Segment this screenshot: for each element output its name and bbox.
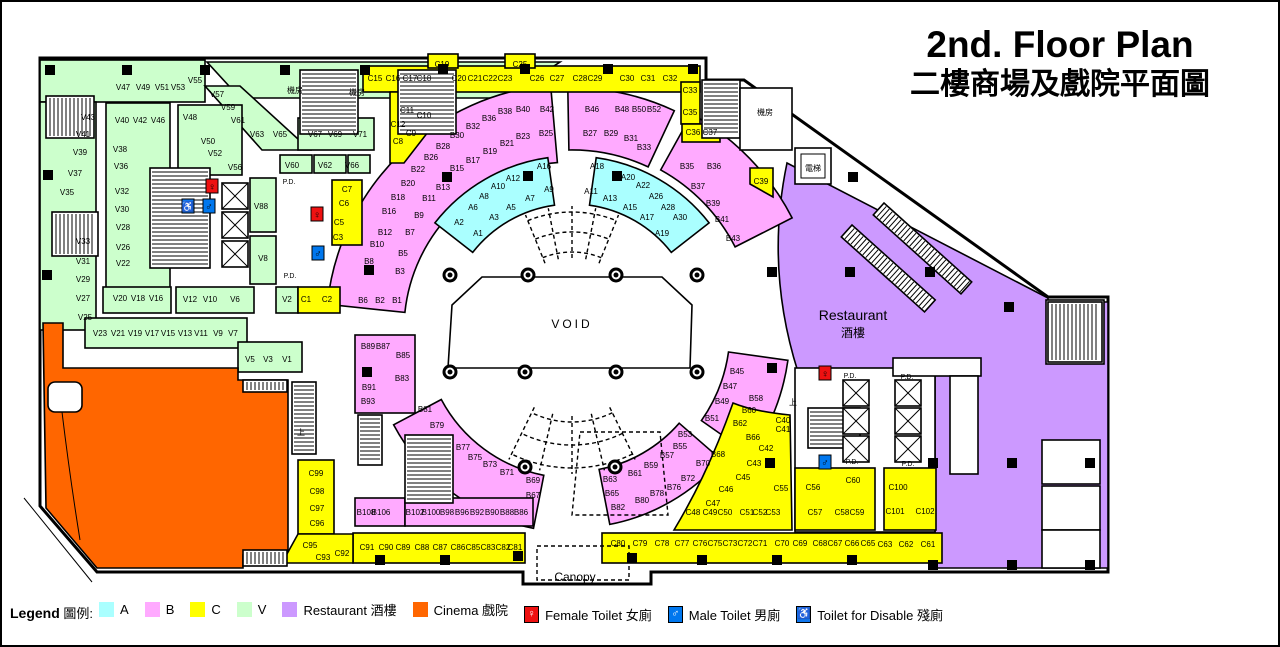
unit-label-v: V88: [254, 202, 269, 211]
unit-label-v: V49: [136, 83, 151, 92]
legend-label: Restaurant 酒樓: [303, 600, 396, 619]
unit-label-c: C20: [452, 74, 467, 83]
lift: [843, 408, 869, 434]
unit-label-v: V17: [145, 329, 160, 338]
unit-label-a: A13: [603, 194, 618, 203]
pd-label: P.D.: [284, 273, 297, 280]
unit-label-c: C68: [813, 539, 828, 548]
unit-label-v: V42: [133, 116, 148, 125]
unit-label-a: A18: [590, 162, 605, 171]
column-square: [848, 172, 858, 182]
unit-label-v: V65: [273, 130, 288, 139]
unit-label-b: B42: [540, 105, 555, 114]
unit-label-c: C17: [403, 74, 418, 83]
column-round-core: [523, 465, 528, 470]
unit-label-b: B55: [673, 442, 688, 451]
unit-label-v: V22: [116, 259, 131, 268]
legend-items: ABCVRestaurant 酒樓Cinema 戲院♀Female Toilet…: [99, 600, 959, 624]
unit-label-b: B36: [707, 162, 722, 171]
unit-label-c: C99: [309, 469, 324, 478]
column-round-core: [614, 370, 619, 375]
column-round-core: [448, 273, 453, 278]
unit-label-v: V26: [116, 243, 131, 252]
column-square: [122, 65, 132, 75]
column-round-core: [613, 465, 618, 470]
column-square: [928, 458, 938, 468]
unit-label-b: B62: [733, 419, 748, 428]
column-square: [523, 171, 533, 181]
unit-label-c: C76: [693, 539, 708, 548]
unit-label-v: V52: [208, 149, 223, 158]
column-square: [772, 555, 782, 565]
unit-label-b: B18: [391, 193, 406, 202]
unit-label-v: V20: [113, 294, 128, 303]
unit-label-a: A19: [655, 229, 670, 238]
unit-label-b: B108: [357, 508, 376, 517]
unit-label-c: C2: [322, 295, 333, 304]
legend-item: ♀Female Toilet 女廁: [524, 605, 652, 624]
unit-label-a: A5: [506, 203, 516, 212]
unit-label-v: V7: [228, 329, 238, 338]
unit-label-c: C72: [738, 539, 753, 548]
unit-label-v: V21: [111, 329, 126, 338]
unit-label-b: B36: [482, 114, 497, 123]
unit-label-b: B17: [466, 156, 481, 165]
unit-label-c: C79: [633, 539, 648, 548]
unit-label-c: C47: [706, 499, 721, 508]
lift: [895, 436, 921, 462]
unit-label-b: B40: [516, 105, 531, 114]
legend-item: Restaurant 酒樓: [282, 600, 396, 619]
unit-label-b: B57: [660, 451, 675, 460]
unit-label-c: C12: [391, 120, 406, 129]
column-square: [200, 65, 210, 75]
unit-label-v: V28: [116, 223, 131, 232]
unit-label-v: V67: [308, 130, 323, 139]
unit-label-c: C8: [393, 137, 404, 146]
unit-label-b: B46: [585, 105, 600, 114]
restaurant-label-zh: 酒樓: [841, 325, 865, 340]
unit-label-c: C61: [921, 540, 936, 549]
column-square: [928, 560, 938, 570]
unit-label-c: C77: [675, 539, 690, 548]
unit-label-c: C75: [708, 539, 723, 548]
unit-label-v: V37: [68, 169, 83, 178]
unit-label-c: C50: [718, 508, 733, 517]
restaurant-label-en: Restaurant: [819, 307, 888, 323]
unit-label-c: C48: [686, 508, 701, 517]
legend-swatch: [99, 602, 114, 617]
unit-label-b: B15: [450, 164, 465, 173]
unit-label-v: V16: [149, 294, 164, 303]
unit-label-b: B59: [644, 461, 659, 470]
unit-label-v: V31: [76, 257, 91, 266]
column-square: [1007, 458, 1017, 468]
staircase: [243, 380, 287, 392]
unit-label-b: B100: [422, 508, 441, 517]
unit-label-c: C90: [379, 543, 394, 552]
unit-label-c: C26: [530, 74, 545, 83]
unit-label-c: C45: [736, 473, 751, 482]
unit-label-b: B37: [691, 182, 706, 191]
unit-label-c: C7: [342, 185, 353, 194]
unit-label-b: B93: [361, 397, 376, 406]
staircase: [300, 70, 358, 134]
unit-label-b: B58: [749, 394, 764, 403]
unit-label-c: C78: [655, 539, 670, 548]
legend-item: ♂Male Toilet 男廁: [668, 605, 781, 624]
unit-label-c: C100: [888, 483, 908, 492]
unit-label-b: B91: [362, 383, 377, 392]
unit-label-c: C42: [759, 444, 774, 453]
unit-label-b: B85: [396, 351, 411, 360]
column-square: [375, 555, 385, 565]
pd-label: P.D.: [902, 461, 915, 468]
unit-label-c: C6: [339, 199, 350, 208]
unit-label-b: B31: [624, 134, 639, 143]
unit-label-v: V27: [76, 294, 91, 303]
unit-label-c: C102: [915, 507, 935, 516]
legend-item: A: [99, 602, 129, 617]
unit-label-c: C92: [335, 549, 350, 558]
unit-label-b: B48: [615, 105, 630, 114]
unit-label-b: B29: [604, 129, 619, 138]
unit-label-v: V38: [113, 145, 128, 154]
unit-label-c: C30: [620, 74, 635, 83]
column-round-core: [523, 370, 528, 375]
unit-label-c: C71: [753, 539, 768, 548]
staircase: [52, 212, 98, 256]
svg-text:♀: ♀: [208, 182, 216, 193]
unit-label-v: V59: [221, 103, 236, 112]
unit-label-c: C95: [303, 541, 318, 550]
unit-label-v: V18: [131, 294, 146, 303]
unit-label-c: C97: [310, 504, 325, 513]
lift: [895, 408, 921, 434]
unit-label-v: V36: [114, 162, 129, 171]
unit-label-c: C10: [417, 111, 432, 120]
legend-label: Female Toilet 女廁: [545, 605, 652, 624]
column-square: [697, 555, 707, 565]
unit-label-v: V56: [228, 163, 243, 172]
unit-label-c: C58: [835, 508, 850, 517]
unit-label-b: B23: [516, 132, 531, 141]
unit-label-v: V9: [213, 329, 223, 338]
unit-label-v: V30: [115, 205, 130, 214]
legend-title: Legend 圖例:: [10, 603, 93, 622]
unit-label-c: C62: [899, 540, 914, 549]
legend-label: Cinema 戲院: [434, 600, 508, 619]
column-square: [688, 64, 698, 74]
unit-label-b: B28: [436, 142, 451, 151]
legend: Legend 圖例: ABCVRestaurant 酒樓Cinema 戲院♀Fe…: [10, 599, 959, 625]
unit-label-v: V29: [76, 275, 91, 284]
unit-label-v: V6: [230, 295, 240, 304]
unit-label-b: B27: [583, 129, 598, 138]
column-square: [43, 170, 53, 180]
unit-label-b: B16: [382, 207, 397, 216]
unit-label-v: V13: [178, 329, 193, 338]
unit-label-c: C3: [333, 233, 344, 242]
pd-label: P.D.: [844, 373, 857, 380]
unit-label-b: B8: [364, 257, 374, 266]
column-square: [1007, 560, 1017, 570]
unit-label-b: B51: [705, 414, 720, 423]
unit-label-v: V25: [78, 313, 93, 322]
legend-label: V: [258, 602, 267, 617]
unit-label-c: C39: [754, 177, 769, 186]
unit-label-v: V53: [171, 83, 186, 92]
unit-label-c: C63: [878, 540, 893, 549]
unit-label-b: B79: [430, 421, 445, 430]
unit-label-v: V48: [183, 113, 198, 122]
unit-label-a: A26: [649, 192, 664, 201]
unit-label-c: C60: [846, 476, 861, 485]
unit-label-c: C15: [368, 74, 383, 83]
column-square: [767, 267, 777, 277]
unit-label-a: A11: [584, 187, 598, 196]
column-square: [767, 363, 777, 373]
unit-label-c: C101: [885, 507, 905, 516]
unit-label-c: C19: [435, 60, 450, 69]
unit-label-c: C56: [806, 483, 821, 492]
legend-label: Male Toilet 男廁: [689, 605, 781, 624]
unit-label-c: C23: [498, 74, 513, 83]
unit-label-c: C59: [850, 508, 865, 517]
legend-label: B: [166, 602, 175, 617]
lift: [895, 380, 921, 406]
room-label: 電梯: [805, 163, 821, 173]
unit-label-c: C88: [415, 543, 430, 552]
unit-label-b: B3: [395, 267, 405, 276]
unit-label-c: C49: [703, 508, 718, 517]
unit-label-c: C25: [513, 60, 528, 69]
unit-label-c: C21: [468, 74, 483, 83]
disabled-toilet-icon: ♿: [796, 606, 811, 623]
unit-label-c: C31: [641, 74, 656, 83]
unit-label-a: A10: [491, 182, 506, 191]
column-square: [45, 65, 55, 75]
staircase: [292, 382, 316, 454]
staircase: [358, 415, 382, 465]
unit-label-v: V63: [250, 130, 265, 139]
unit-label-c: C57: [808, 508, 823, 517]
unit-label-a: A1: [473, 229, 483, 238]
unit-label-v: V32: [115, 187, 130, 196]
unit-label-b: B12: [378, 228, 393, 237]
void-label: VOID: [551, 317, 592, 331]
legend-item: C: [190, 602, 220, 617]
unit-label-b: B11: [422, 194, 436, 203]
unit-label-v: V2: [282, 295, 292, 304]
unit-label-c: C35: [683, 108, 698, 117]
unit-label-b: B52: [647, 105, 662, 114]
unit-label-c: C29: [588, 74, 603, 83]
column-square: [42, 270, 52, 280]
column-square: [765, 458, 775, 468]
unit-label-c: C32: [663, 74, 678, 83]
unit-label-b: B86: [514, 508, 529, 517]
legend-swatch: [282, 602, 297, 617]
column-square: [845, 267, 855, 277]
svg-text:♂: ♂: [205, 202, 213, 213]
male-toilet-icon: ♂: [819, 455, 831, 469]
unit-label-c: C67: [828, 539, 843, 548]
female-toilet-icon: ♀: [819, 366, 831, 380]
unit-label-c: C18: [417, 74, 432, 83]
column-square: [925, 267, 935, 277]
unit-label-c: C5: [334, 218, 345, 227]
unit-label-c: C96: [310, 519, 325, 528]
unit-label-v: V57: [210, 90, 225, 99]
column-square: [280, 65, 290, 75]
unit-label-a: A20: [621, 173, 636, 182]
unit-label-b: B70: [696, 459, 711, 468]
svg-text:♂: ♂: [314, 249, 322, 260]
unit-label-b: B21: [500, 139, 515, 148]
unit-label-b: B2: [375, 296, 385, 305]
unit-label-b: B102: [406, 508, 425, 517]
svg-text:♂: ♂: [821, 458, 829, 469]
female-toilet-icon: ♀: [524, 606, 539, 623]
unit-label-a: A8: [479, 192, 489, 201]
unit-label-b: B98: [440, 508, 455, 517]
unit-label-c: C98: [310, 487, 325, 496]
unit-label-b: B88: [500, 508, 515, 517]
unit-label-c: C85: [466, 543, 481, 552]
column-square: [362, 367, 372, 377]
unit-label-b: B60: [742, 406, 757, 415]
unit-label-b: B75: [468, 453, 483, 462]
unit-label-a: A28: [661, 203, 676, 212]
column-round-core: [614, 273, 619, 278]
unit-label-c: C70: [775, 539, 790, 548]
unit-label-b: B20: [401, 179, 416, 188]
unit-label-b: B82: [611, 503, 626, 512]
legend-item: B: [145, 602, 175, 617]
unit-label-v: V66: [345, 161, 360, 170]
unit-label-b: B38: [498, 107, 513, 116]
unit-label-c: C40: [776, 416, 791, 425]
unit-label-v: V40: [115, 116, 130, 125]
unit-label-b: B77: [456, 443, 471, 452]
column-square: [1085, 458, 1095, 468]
plan-title: 2nd. Floor Plan 二樓商場及戲院平面圖: [848, 24, 1272, 104]
svg-text:♀: ♀: [313, 210, 321, 221]
unit-label-b: B50: [632, 105, 647, 114]
unit-label-b: B6: [358, 296, 368, 305]
lift: [843, 380, 869, 406]
female-toilet-icon: ♀: [311, 207, 323, 221]
male-toilet-icon: ♂: [312, 246, 324, 260]
unit-label-b: B19: [483, 147, 498, 156]
unit-label-c: C66: [845, 539, 860, 548]
unit-label-a: A22: [636, 181, 651, 190]
unit-label-b: B63: [603, 475, 618, 484]
pd-label: P.D.: [846, 459, 859, 466]
disabled-toilet-icon: ♿: [182, 199, 194, 213]
column-round-core: [448, 370, 453, 375]
column-round-core: [695, 370, 700, 375]
unit-label-v: V35: [60, 188, 75, 197]
unit-label-a: A12: [506, 174, 521, 183]
staircase: [1048, 302, 1102, 362]
column-square: [364, 265, 374, 275]
legend-swatch: [190, 602, 205, 617]
plant-room: [740, 88, 792, 150]
unit-label-a: A15: [623, 203, 638, 212]
male-toilet-icon: ♂: [203, 199, 215, 213]
legend-swatch: [145, 602, 160, 617]
unit-label-c: C33: [683, 86, 698, 95]
unit-label-v: V39: [73, 148, 88, 157]
unit-label-v: V1: [282, 355, 292, 364]
room-label: 機房: [757, 107, 773, 117]
legend-swatch: [237, 602, 252, 617]
unit-label-c: C46: [719, 485, 734, 494]
unit-label-b: B87: [376, 342, 391, 351]
unit-label-v: V71: [353, 130, 368, 139]
unit-label-a: A2: [454, 218, 464, 227]
unit-label-a: A6: [468, 203, 478, 212]
unit-label-v: V69: [328, 130, 343, 139]
unit-label-c: C65: [861, 539, 876, 548]
unit-label-b: B35: [680, 162, 695, 171]
unit-label-v: V8: [258, 254, 268, 263]
unit-label-a: A9: [544, 185, 554, 194]
unit-label-c: C69: [793, 539, 808, 548]
unit-label-a: A3: [489, 213, 499, 222]
unit-label-b: B78: [650, 489, 665, 498]
room-label: 上: [297, 428, 305, 437]
unit-label-b: B9: [414, 211, 424, 220]
unit-label-v: V60: [285, 161, 300, 170]
unit-label-c: C9: [406, 129, 417, 138]
staircase: [405, 435, 453, 503]
unit-label-b: B71: [500, 468, 515, 477]
unit-label-b: B83: [395, 374, 410, 383]
column-square: [1085, 560, 1095, 570]
unit-label-b: B76: [667, 483, 682, 492]
unit-label-b: B96: [455, 508, 470, 517]
unit-label-b: B33: [637, 143, 652, 152]
unit-label-b: B39: [706, 199, 721, 208]
unit-label-b: B25: [539, 129, 554, 138]
unit-label-c: C27: [550, 74, 565, 83]
column-square: [440, 555, 450, 565]
unit-label-b: B32: [466, 122, 481, 131]
unit-label-v: V11: [194, 329, 208, 338]
unit-label-b: B67: [526, 491, 541, 500]
unit-label-b: B13: [436, 183, 451, 192]
unit-label-a: A16: [537, 162, 552, 171]
unit-label-b: B49: [715, 397, 730, 406]
legend-label: Toilet for Disable 殘廁: [817, 605, 943, 624]
unit-label-v: V43: [81, 113, 96, 122]
lift: [222, 241, 248, 267]
unit-label-a: A30: [673, 213, 688, 222]
unit-label-c: C1: [301, 295, 312, 304]
unit-label-b: B69: [526, 476, 541, 485]
unit-label-v: V41: [76, 130, 91, 139]
unit-label-v: V10: [203, 295, 218, 304]
unit-label-b: B73: [483, 460, 498, 469]
column-round-core: [695, 273, 700, 278]
column-square: [1004, 302, 1014, 312]
unit-label-b: B90: [485, 508, 500, 517]
room-label: 機房: [287, 85, 303, 95]
unit-label-b: B41: [715, 215, 730, 224]
